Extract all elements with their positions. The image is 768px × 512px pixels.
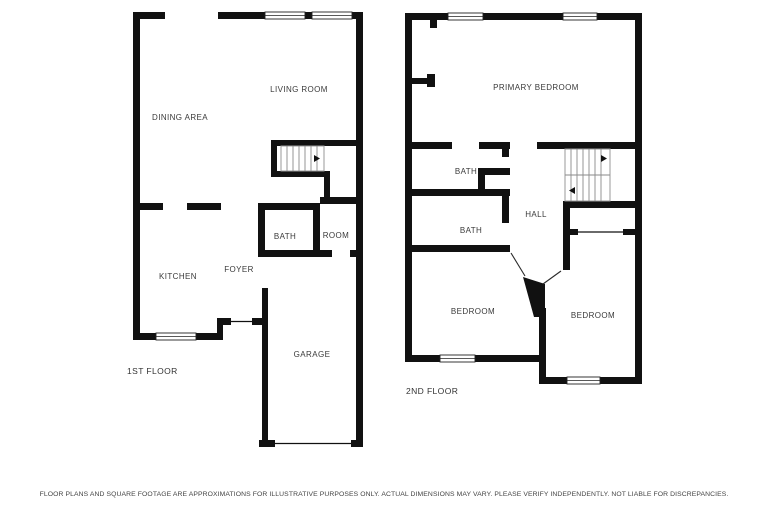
wall-segment [252, 318, 268, 325]
wall-segment [271, 171, 330, 177]
room-label-primary-bedroom: PRIMARY BEDROOM [493, 83, 579, 92]
window [156, 333, 196, 340]
wall-segment [563, 201, 637, 208]
window [448, 13, 483, 20]
angled-wall [523, 277, 545, 317]
stairs [281, 146, 324, 171]
room-label-foyer: FOYER [224, 265, 254, 274]
wall-segment [258, 203, 265, 257]
wall-segment [405, 355, 546, 362]
wall-segment [187, 203, 221, 210]
room-label-bedroom-right: BEDROOM [571, 311, 615, 320]
room-label-room: ROOM [323, 231, 350, 240]
floor2-plan: PRIMARY BEDROOM BATH BATH HALL BEDROOM B… [405, 13, 642, 396]
room-label-bath-lower: BATH [460, 226, 482, 235]
window [265, 12, 305, 19]
window [563, 13, 597, 20]
wall-segment [133, 203, 163, 210]
wall-segment [218, 12, 265, 19]
wall-segment [537, 142, 635, 149]
stairs-up-arrow [601, 155, 607, 162]
wall-segment [405, 189, 510, 196]
wall-segment [324, 171, 330, 204]
wall-segment [350, 250, 363, 257]
wall-segment [502, 196, 509, 223]
wall-segment [430, 20, 437, 28]
disclaimer-text: FLOOR PLANS AND SQUARE FOOTAGE ARE APPRO… [40, 491, 729, 498]
stairs [565, 149, 610, 201]
wall-segment [427, 74, 435, 87]
floor1-plan: LIVING ROOM DINING AREA KITCHEN FOYER BA… [127, 12, 363, 447]
wall-segment [351, 440, 363, 447]
room-label-hall: HALL [525, 210, 547, 219]
wall-segment [271, 140, 363, 146]
room-label-kitchen: KITCHEN [159, 272, 197, 281]
wall-segment [320, 250, 332, 257]
wall-segment [405, 13, 412, 362]
wall-segment [356, 12, 363, 447]
stairs-down-arrow [569, 187, 575, 194]
door-swing [511, 253, 525, 276]
floor1-walls [133, 12, 363, 447]
window [440, 355, 475, 362]
wall-segment [313, 203, 320, 257]
floor-plan-drawing: LIVING ROOM DINING AREA KITCHEN FOYER BA… [0, 0, 768, 512]
room-label-bath: BATH [274, 232, 296, 241]
wall-segment [217, 318, 231, 325]
wall-segment [405, 245, 510, 252]
wall-segment [483, 13, 563, 20]
wall-segment [405, 142, 452, 149]
window [312, 12, 352, 19]
wall-segment [623, 229, 637, 235]
wall-segment [563, 229, 578, 235]
room-label-bath-upper: BATH [455, 167, 477, 176]
door-swing [543, 271, 561, 284]
wall-segment [405, 78, 430, 84]
room-label-dining-area: DINING AREA [152, 113, 208, 122]
wall-segment [258, 203, 320, 210]
floor2-title: 2ND FLOOR [406, 386, 458, 396]
room-label-bedroom-left: BEDROOM [451, 307, 495, 316]
wall-segment [563, 201, 570, 270]
floor1-title: 1ST FLOOR [127, 366, 178, 376]
room-label-garage: GARAGE [294, 350, 331, 359]
floor2-walls [405, 13, 642, 384]
wall-segment [635, 13, 642, 384]
wall-segment [502, 142, 509, 157]
wall-segment [262, 288, 268, 443]
room-label-living-room: LIVING ROOM [270, 85, 328, 94]
floor-plan-page: LIVING ROOM DINING AREA KITCHEN FOYER BA… [0, 0, 768, 512]
floor2-windows [440, 13, 600, 384]
window [567, 377, 600, 384]
wall-segment [258, 250, 320, 257]
wall-segment [133, 12, 140, 340]
